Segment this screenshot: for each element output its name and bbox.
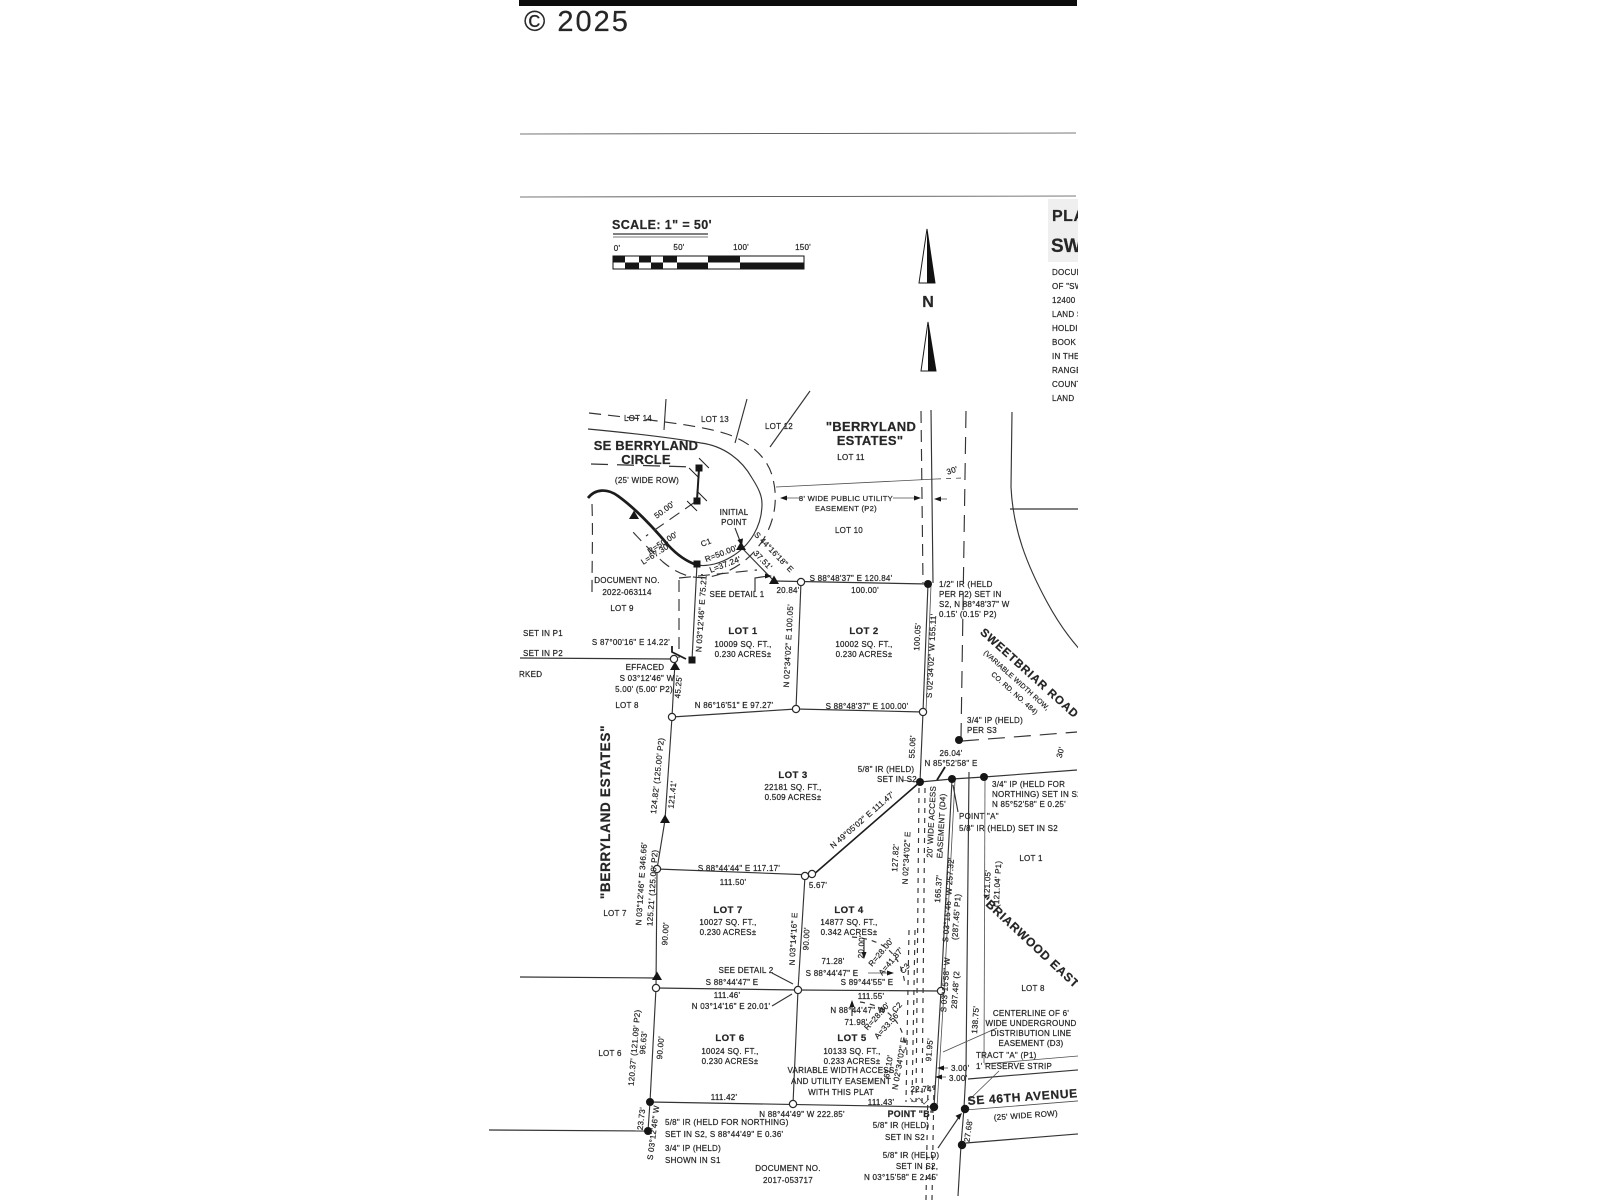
- svg-text:10027 SQ. FT.,: 10027 SQ. FT.,: [699, 918, 756, 927]
- svg-text:DISTRIBUTION LINE: DISTRIBUTION LINE: [991, 1029, 1072, 1038]
- svg-text:LOT 13: LOT 13: [701, 415, 729, 424]
- svg-text:10024 SQ. FT.,: 10024 SQ. FT.,: [701, 1047, 758, 1056]
- svg-text:0.509 ACRES±: 0.509 ACRES±: [765, 793, 822, 802]
- svg-text:LOT 8: LOT 8: [615, 701, 639, 710]
- svg-text:EASEMENT (P2): EASEMENT (P2): [815, 504, 877, 513]
- svg-text:LOT 6: LOT 6: [715, 1033, 744, 1044]
- svg-text:5/8" IR (HELD): 5/8" IR (HELD): [858, 765, 915, 774]
- svg-text:EASEMENT (D3): EASEMENT (D3): [999, 1039, 1064, 1048]
- svg-text:100': 100': [733, 243, 749, 252]
- svg-text:N 85°52'58" E: N 85°52'58" E: [924, 759, 977, 768]
- svg-text:22.74': 22.74': [910, 1085, 933, 1094]
- svg-text:PER P2) SET IN: PER P2) SET IN: [939, 590, 1001, 599]
- svg-text:0.230 ACRES±: 0.230 ACRES±: [715, 650, 772, 659]
- svg-text:100.05': 100.05': [912, 623, 922, 651]
- svg-text:S 88°48'37" E 100.00': S 88°48'37" E 100.00': [826, 702, 909, 711]
- svg-text:POINT "B": POINT "B": [888, 1109, 935, 1119]
- svg-text:127.82': 127.82': [890, 844, 900, 872]
- svg-text:SET IN P1: SET IN P1: [523, 629, 563, 638]
- svg-text:3/4" IP (HELD): 3/4" IP (HELD): [665, 1144, 721, 1153]
- svg-text:20.00': 20.00': [856, 935, 866, 959]
- svg-text:14877 SQ. FT.,: 14877 SQ. FT.,: [820, 918, 877, 927]
- svg-text:SEE DETAIL 1: SEE DETAIL 1: [709, 590, 764, 599]
- svg-text:S 88°44'47" E: S 88°44'47" E: [706, 978, 759, 987]
- svg-text:SEE DETAIL 2: SEE DETAIL 2: [718, 966, 773, 975]
- svg-text:10133 SQ. FT.,: 10133 SQ. FT.,: [823, 1047, 880, 1056]
- svg-text:LOT 11: LOT 11: [837, 453, 865, 462]
- svg-text:© 2025: © 2025: [524, 6, 630, 38]
- svg-text:SET IN S2,: SET IN S2,: [896, 1162, 938, 1171]
- svg-text:LOT 8: LOT 8: [1021, 984, 1045, 993]
- svg-text:VARIABLE WIDTH ACCESS: VARIABLE WIDTH ACCESS: [788, 1066, 895, 1075]
- svg-text:111.43': 111.43': [868, 1098, 895, 1107]
- svg-text:DOCUMENT NO.: DOCUMENT NO.: [594, 576, 660, 585]
- svg-text:TRACT "A" (P1): TRACT "A" (P1): [976, 1051, 1037, 1060]
- svg-text:N 03°14'16" E 20.01': N 03°14'16" E 20.01': [692, 1002, 771, 1011]
- svg-text:LOT 1: LOT 1: [1019, 854, 1043, 863]
- svg-text:CENTERLINE OF 6': CENTERLINE OF 6': [993, 1009, 1069, 1018]
- svg-text:100.00': 100.00': [851, 586, 879, 595]
- svg-text:SET IN S2: SET IN S2: [885, 1133, 925, 1142]
- svg-text:N 85°52'58" E 0.25': N 85°52'58" E 0.25': [992, 800, 1066, 809]
- svg-text:2017-053717: 2017-053717: [763, 1176, 813, 1185]
- svg-text:S 88°44'47" E: S 88°44'47" E: [806, 969, 859, 978]
- svg-text:SE BERRYLAND: SE BERRYLAND: [594, 438, 698, 453]
- svg-text:"BERRYLAND: "BERRYLAND: [826, 419, 916, 434]
- svg-text:INITIAL: INITIAL: [720, 508, 749, 517]
- svg-text:0.230 ACRES±: 0.230 ACRES±: [702, 1057, 759, 1066]
- svg-text:111.46': 111.46': [714, 991, 741, 1000]
- svg-text:SET IN S2: SET IN S2: [877, 775, 917, 784]
- svg-text:LOT 12: LOT 12: [765, 422, 793, 431]
- svg-text:N 03°15'58" E 2.45': N 03°15'58" E 2.45': [864, 1173, 938, 1182]
- svg-text:DOCUMENT NO.: DOCUMENT NO.: [755, 1164, 821, 1173]
- svg-text:LOT 5: LOT 5: [837, 1033, 866, 1044]
- svg-text:111.42': 111.42': [711, 1093, 738, 1102]
- svg-text:LAND: LAND: [1052, 394, 1074, 403]
- svg-text:8' WIDE PUBLIC UTILITY: 8' WIDE PUBLIC UTILITY: [799, 494, 893, 503]
- svg-text:1' RESERVE STRIP: 1' RESERVE STRIP: [976, 1062, 1052, 1071]
- svg-text:N 86°16'51" E 97.27': N 86°16'51" E 97.27': [695, 701, 774, 710]
- svg-text:111.55': 111.55': [858, 992, 885, 1001]
- svg-text:RKED: RKED: [519, 670, 542, 679]
- svg-text:5.00' (5.00' P2): 5.00' (5.00' P2): [615, 685, 673, 694]
- svg-text:20.84': 20.84': [776, 586, 799, 595]
- svg-text:0.233 ACRES±: 0.233 ACRES±: [824, 1057, 881, 1066]
- svg-text:111.50': 111.50': [720, 878, 747, 887]
- svg-text:71.28': 71.28': [821, 957, 844, 966]
- svg-text:1/2" IR (HELD: 1/2" IR (HELD: [939, 580, 993, 589]
- svg-text:WIDE UNDERGROUND: WIDE UNDERGROUND: [985, 1019, 1076, 1028]
- svg-text:SCALE: 1" = 50': SCALE: 1" = 50': [612, 218, 712, 232]
- svg-text:S 87°00'16" E 14.22': S 87°00'16" E 14.22': [592, 638, 670, 647]
- svg-text:LOT 6: LOT 6: [598, 1049, 622, 1058]
- svg-text:90.00': 90.00': [801, 927, 811, 951]
- svg-text:LOT 14: LOT 14: [624, 414, 652, 423]
- svg-text:POINT "A": POINT "A": [959, 812, 999, 821]
- svg-text:5/8" IR (HELD FOR NORTHING): 5/8" IR (HELD FOR NORTHING): [665, 1118, 789, 1127]
- svg-text:SHOWN IN S1: SHOWN IN S1: [665, 1156, 721, 1165]
- svg-text:S 89°44'55" E: S 89°44'55" E: [841, 978, 894, 987]
- svg-text:NORTHING) SET IN S2: NORTHING) SET IN S2: [992, 790, 1082, 799]
- svg-text:S 88°48'37" E 120.84': S 88°48'37" E 120.84': [810, 574, 893, 583]
- svg-text:S2, N 88°48'37" W: S2, N 88°48'37" W: [939, 600, 1010, 609]
- svg-text:50': 50': [673, 243, 684, 252]
- svg-text:3.00': 3.00': [951, 1064, 970, 1073]
- svg-text:0': 0': [614, 244, 621, 253]
- svg-text:SET IN P2: SET IN P2: [523, 649, 563, 658]
- svg-text:S 03°12'46" W: S 03°12'46" W: [620, 674, 675, 683]
- svg-text:26.04': 26.04': [939, 749, 962, 758]
- svg-text:10002 SQ. FT.,: 10002 SQ. FT.,: [835, 640, 892, 649]
- svg-text:S 88°44'44" E 117.17': S 88°44'44" E 117.17': [698, 864, 780, 873]
- svg-text:LOT 7: LOT 7: [713, 905, 742, 916]
- svg-text:LOT 3: LOT 3: [778, 770, 807, 781]
- svg-text:3/4" IP (HELD FOR: 3/4" IP (HELD FOR: [992, 780, 1065, 789]
- svg-text:0.230 ACRES±: 0.230 ACRES±: [836, 650, 893, 659]
- svg-text:LOT 2: LOT 2: [849, 626, 878, 637]
- svg-text:10009 SQ. FT.,: 10009 SQ. FT.,: [714, 640, 771, 649]
- svg-text:22181 SQ. FT.,: 22181 SQ. FT.,: [764, 783, 821, 792]
- svg-text:N: N: [922, 294, 934, 311]
- svg-text:LOT 4: LOT 4: [834, 905, 863, 916]
- svg-text:5/8" IR (HELD) SET IN S2: 5/8" IR (HELD) SET IN S2: [959, 824, 1058, 833]
- svg-text:LOT 7: LOT 7: [603, 909, 627, 918]
- svg-text:CIRCLE: CIRCLE: [621, 452, 671, 467]
- svg-text:55.06': 55.06': [907, 735, 917, 759]
- svg-text:"BERRYLAND ESTATES": "BERRYLAND ESTATES": [598, 725, 613, 899]
- svg-text:5/8" IR (HELD): 5/8" IR (HELD): [873, 1121, 930, 1130]
- svg-text:WITH THIS PLAT: WITH THIS PLAT: [808, 1088, 874, 1097]
- svg-text:POINT: POINT: [721, 518, 747, 527]
- svg-text:(25' WIDE ROW): (25' WIDE ROW): [615, 476, 679, 485]
- svg-text:3/4" IP (HELD): 3/4" IP (HELD): [967, 716, 1023, 725]
- svg-text:PER S3: PER S3: [967, 726, 997, 735]
- svg-text:2022-063114: 2022-063114: [602, 588, 652, 597]
- svg-text:SET IN S2, S 88°44'49" E 0.36': SET IN S2, S 88°44'49" E 0.36': [665, 1130, 784, 1139]
- svg-text:LOT 10: LOT 10: [835, 526, 863, 535]
- svg-text:LOT 1: LOT 1: [728, 626, 757, 637]
- svg-text:90.00': 90.00': [660, 922, 671, 946]
- svg-text:AND UTILITY EASEMENT: AND UTILITY EASEMENT: [791, 1077, 891, 1086]
- svg-text:EFFACED: EFFACED: [626, 663, 665, 672]
- svg-text:0.230 ACRES±: 0.230 ACRES±: [700, 928, 757, 937]
- svg-text:3.00': 3.00': [949, 1074, 968, 1083]
- svg-text:0.15' (0.15' P2): 0.15' (0.15' P2): [939, 610, 997, 619]
- svg-text:LOT 9: LOT 9: [610, 604, 634, 613]
- svg-text:ESTATES": ESTATES": [837, 433, 904, 448]
- svg-text:150': 150': [795, 243, 811, 252]
- svg-text:5/8" IR (HELD): 5/8" IR (HELD): [883, 1151, 940, 1160]
- svg-text:0.342 ACRES±: 0.342 ACRES±: [821, 928, 878, 937]
- svg-text:5.67': 5.67': [809, 881, 828, 890]
